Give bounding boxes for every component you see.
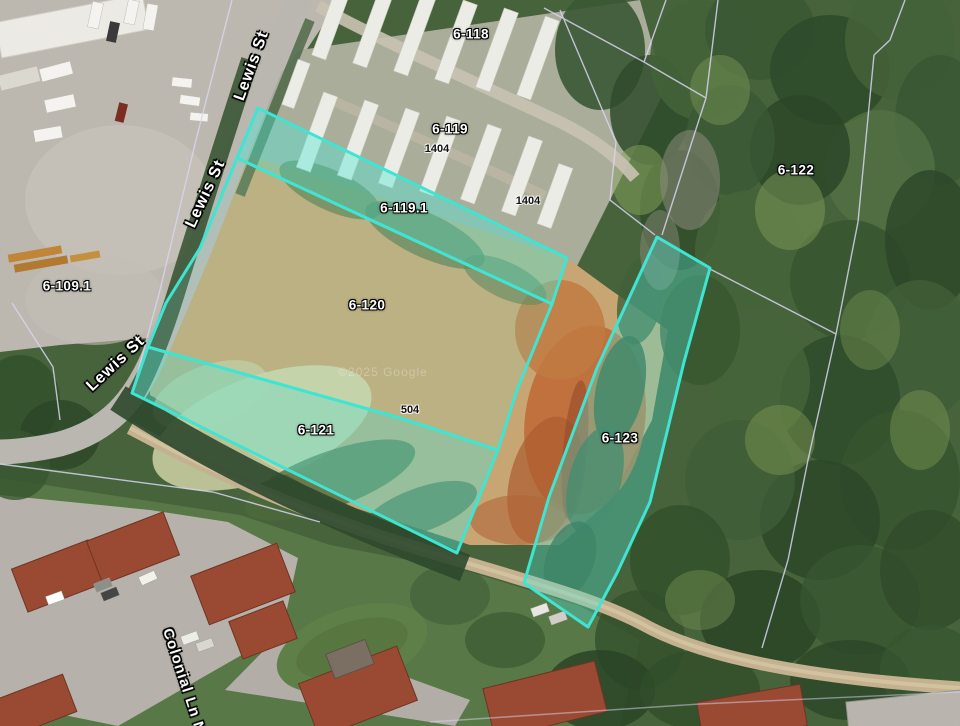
satellite-map[interactable]: Lewis St Lewis St Lewis St Colonial Ln N… xyxy=(0,0,960,726)
aerial-imagery xyxy=(0,0,960,726)
